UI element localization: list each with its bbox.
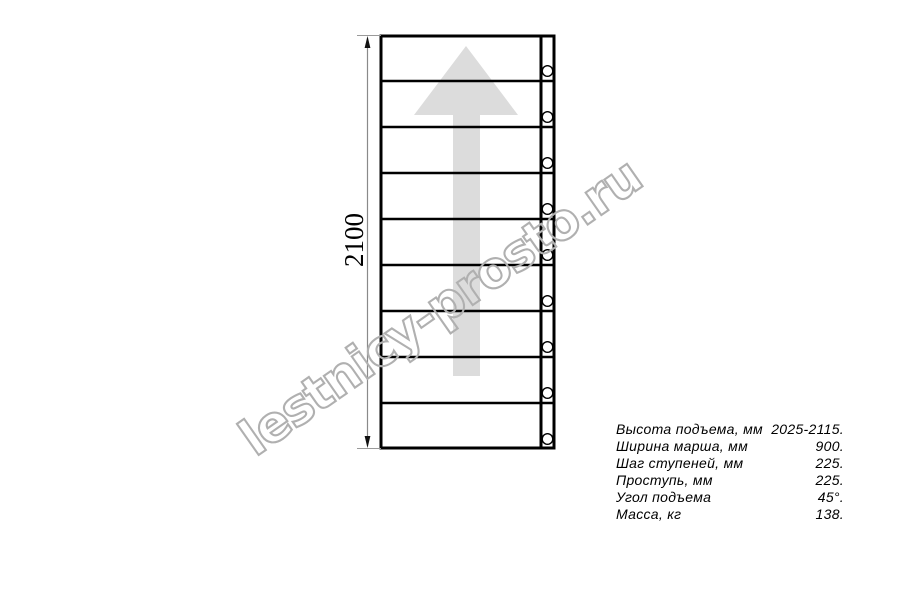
spec-value: 138. [816,506,844,523]
spec-value: 45°. [818,489,844,506]
spec-label: Шаг ступеней, мм [616,455,743,472]
spec-label: Проступь, мм [616,472,713,489]
spec-row-step-pitch: Шаг ступеней, мм 225. [616,455,844,472]
fastener-hole [542,342,553,353]
spec-label: Ширина марша, мм [616,438,748,455]
fastener-hole [542,66,553,77]
fastener-hole [542,112,553,123]
specs-table: Высота подъема, мм 2025-2115. Ширина мар… [616,421,844,523]
spec-value: 2025-2115. [771,421,844,438]
dimension-arrowhead-down [365,436,371,448]
spec-label: Высота подъема, мм [616,421,763,438]
staircase-drawing-page: 2100 lestnicy-prosto.ru Высота подъема, … [0,0,900,600]
spec-label: Масса, кг [616,506,681,523]
fastener-hole [542,296,553,307]
spec-value: 225. [816,472,844,489]
watermark-text: lestnicy-prosto.ru [229,147,652,467]
fastener-hole [542,434,553,445]
dimension-value-label: 2100 [339,213,369,267]
spec-row-flight-width: Ширина марша, мм 900. [616,438,844,455]
fastener-hole [542,158,553,169]
dimension-arrowhead-up [365,36,371,48]
spec-row-tread-depth: Проступь, мм 225. [616,472,844,489]
spec-value: 900. [816,438,844,455]
spec-value: 225. [816,455,844,472]
spec-row-climb-angle: Угол подъема 45°. [616,489,844,506]
spec-row-mass: Масса, кг 138. [616,506,844,523]
fastener-hole [542,388,553,399]
spec-label: Угол подъема [616,489,711,506]
spec-row-rise-height: Высота подъема, мм 2025-2115. [616,421,844,438]
